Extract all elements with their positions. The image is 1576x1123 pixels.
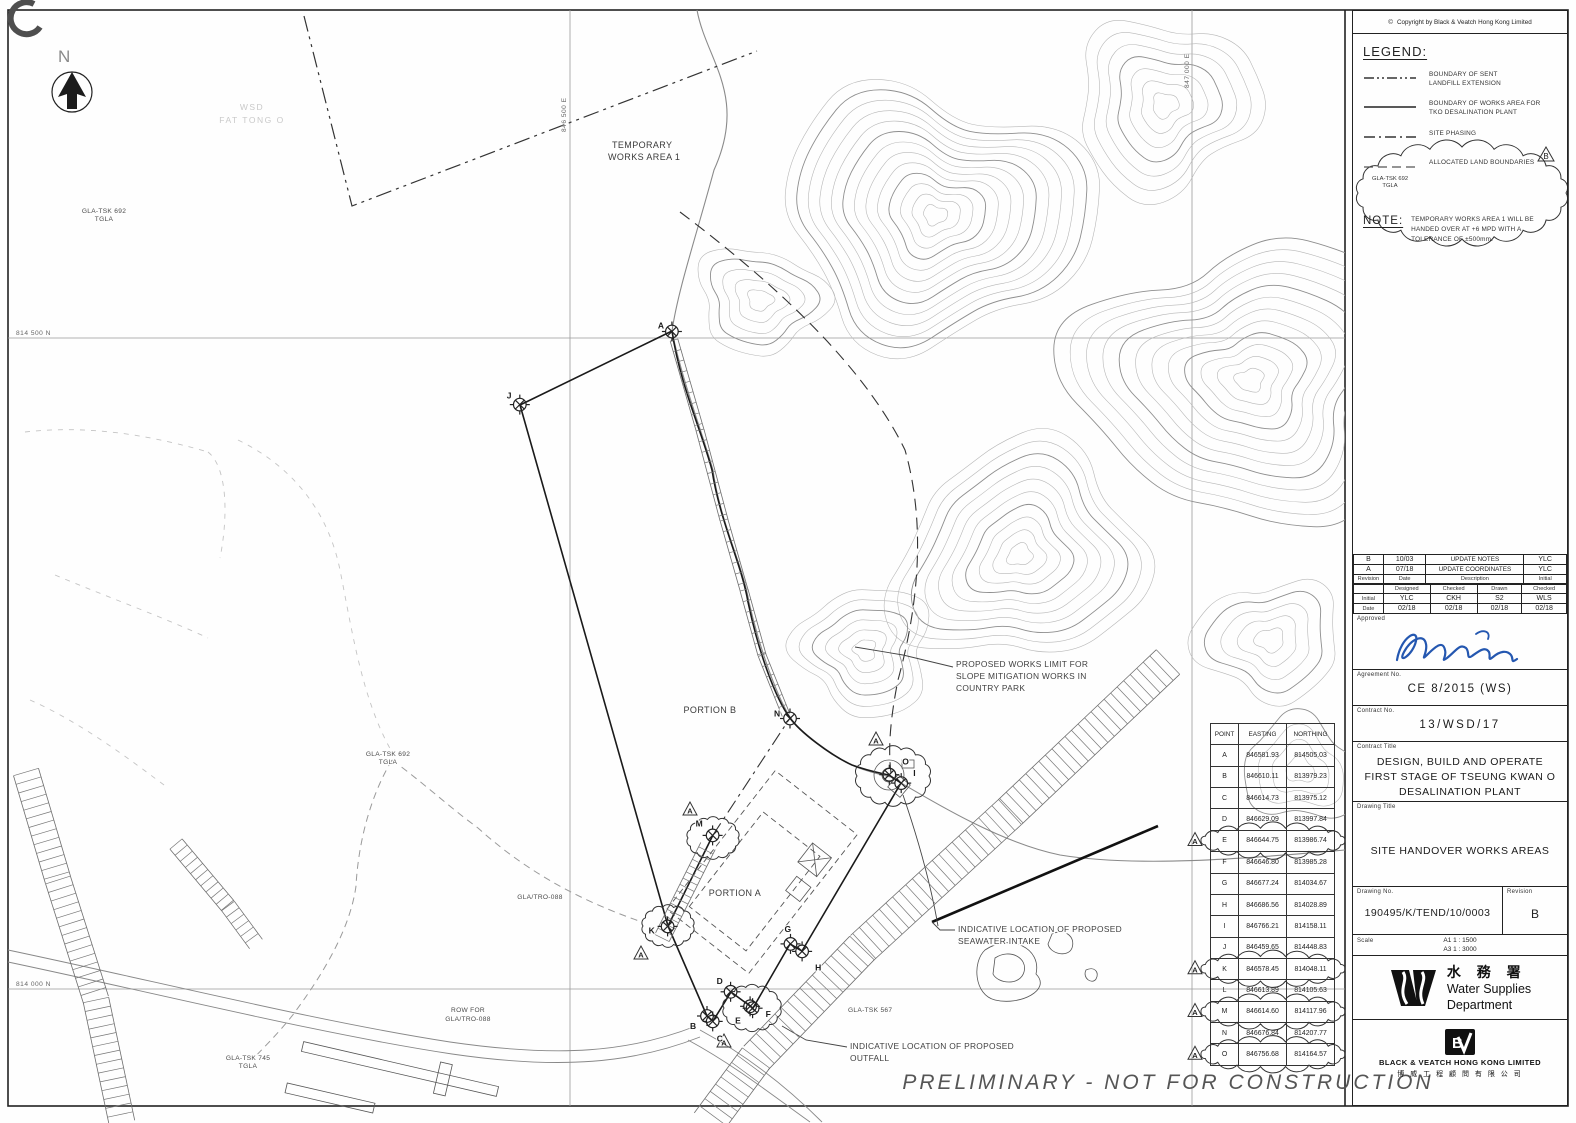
coordinate-row: C846614.73813975.12	[1211, 788, 1335, 809]
scale-values: A1 1 : 1500A3 1 : 3000	[1443, 936, 1476, 954]
hatched-embankment	[694, 650, 1179, 1123]
north-label: N	[58, 47, 70, 66]
svg-text:FAT TONG O: FAT TONG O	[219, 115, 284, 125]
sent-landfill-boundary	[304, 16, 757, 206]
coordinate-row: M846614.60814117.96	[1211, 1001, 1335, 1022]
copyright-icon: ©	[1388, 19, 1393, 26]
seawater-intake-label: INDICATIVE LOCATION OF PROPOSED SEAWATER…	[958, 924, 1122, 946]
svg-text:A: A	[1192, 1008, 1198, 1017]
coordinate-row: K846578.45814048.11	[1211, 958, 1335, 979]
coordinate-row: A846581.93814505.03	[1211, 745, 1335, 766]
solid-line-swatch	[1361, 99, 1419, 117]
coordinate-row: O846756.68814164.57	[1211, 1044, 1335, 1065]
svg-text:SEAWATER INTAKE: SEAWATER INTAKE	[958, 936, 1040, 946]
contract-no-label: Contract No.	[1357, 708, 1394, 714]
scale-label: Scale	[1357, 938, 1374, 944]
revision-triangle: A	[1188, 1004, 1202, 1018]
svg-text:A: A	[638, 951, 644, 960]
point-label: E	[735, 1015, 741, 1025]
point-label: C	[717, 1033, 723, 1043]
svg-text:A: A	[1192, 1051, 1198, 1060]
coordinate-row: J846459.65814448.83	[1211, 937, 1335, 958]
point-label: H	[815, 962, 821, 972]
allocated-boundary-swatch: GLA-TSK 692TGLA	[1361, 158, 1419, 190]
bv-box: B BLACK & VEATCH HONG KONG LIMITED 博 威 工…	[1353, 1020, 1567, 1086]
leader-lines	[782, 647, 1158, 1047]
contract-title: DESIGN, BUILD AND OPERATE FIRST STAGE OF…	[1353, 755, 1567, 801]
drawing-no: 190495/K/TEND/10/0003	[1353, 907, 1502, 919]
hatched-embankment	[14, 768, 135, 1123]
coordinate-row: L846613.89814105.63	[1211, 980, 1335, 1001]
revision-triangle: A	[634, 946, 648, 960]
approval-signature	[1381, 622, 1551, 668]
roads	[8, 950, 822, 1122]
drawing-no-box: Drawing No. 190495/K/TEND/10/0003 Revisi…	[1353, 887, 1567, 935]
bv-logo-icon: B	[1444, 1028, 1476, 1056]
contract-no: 13/WSD/17	[1353, 719, 1567, 731]
point-label: B	[690, 1021, 696, 1031]
revision-row: B10/03 UPDATE NOTESYLC	[1354, 555, 1567, 565]
svg-text:A: A	[1192, 837, 1198, 846]
point-label: A	[658, 321, 664, 331]
bv-name: BLACK & VEATCH HONG KONG LIMITED	[1379, 1058, 1541, 1067]
portion-b-label: PORTION B	[684, 705, 737, 715]
revision-triangle: A	[683, 802, 697, 816]
point-label: I	[913, 768, 915, 778]
drawing-sheet: AAAAABCDEFGHIJKMNOAAAA N WSD FAT TONG O …	[0, 0, 1576, 1123]
staff-date-row: Date02/18 02/1802/18 02/18	[1354, 604, 1567, 614]
svg-text:GLA/TRO-088: GLA/TRO-088	[445, 1016, 490, 1023]
contract-title-box: Contract Title DESIGN, BUILD AND OPERATE…	[1353, 742, 1567, 802]
row-for-label: ROW FOR	[451, 1007, 485, 1014]
scale-box: Scale A1 1 : 1500A3 1 : 3000	[1353, 935, 1567, 956]
revision-header-row: RevisionDate DescriptionInitial	[1354, 575, 1567, 584]
point-label: N	[774, 709, 780, 719]
svg-text:A: A	[687, 807, 693, 816]
coordinate-table: POINTEASTINGNORTHINGA846581.93814505.03B…	[1210, 723, 1335, 1066]
svg-text:846 500 E: 846 500 E	[561, 97, 568, 132]
note-block: NOTE: TEMPORARY WORKS AREA 1 WILL BE HAN…	[1361, 215, 1559, 245]
revision-triangle: A	[1188, 833, 1202, 847]
gla-692-label-mid: GLA-TSK 692	[366, 751, 410, 758]
revision-triangle: A	[869, 732, 883, 746]
svg-text:PROPOSED WORKS LIMIT FOR: PROPOSED WORKS LIMIT FOR	[956, 659, 1088, 669]
coordinate-row: D846629.09813997.84	[1211, 809, 1335, 830]
drawing-no-label: Drawing No.	[1357, 889, 1393, 895]
point-label: K	[649, 925, 656, 935]
legend-item-sent-boundary: BOUNDARY OF SENTLANDFILL EXTENSION	[1361, 70, 1559, 88]
drawing-title: SITE HANDOVER WORKS AREAS	[1353, 844, 1567, 859]
slope-works-label: PROPOSED WORKS LIMIT FOR SLOPE MITIGATIO…	[956, 659, 1088, 693]
legend-revision-triangle: B	[1537, 146, 1555, 167]
pier-outlines	[285, 1031, 501, 1113]
allocated-land-boundaries	[25, 430, 642, 1058]
svg-text:INDICATIVE LOCATION OF PROPOSE: INDICATIVE LOCATION OF PROPOSED	[850, 1041, 1014, 1051]
point-label: D	[717, 976, 723, 986]
grid-labels: 846 500 E 847 000 E 814 500 N 814 000 N	[16, 53, 1191, 988]
site-phasing-line	[713, 718, 790, 835]
gla-tsk-567-label: GLA-TSK 567	[848, 1007, 892, 1014]
gla-692-label-top: GLA-TSK 692	[82, 208, 126, 215]
revision-triangle: A	[1188, 961, 1202, 975]
copyright-text: Copyright by Black & Veatch Hong Kong Li…	[1397, 19, 1532, 26]
scan-artifact	[11, 2, 40, 34]
coordinate-header-row: POINTEASTINGNORTHING	[1211, 724, 1335, 745]
coordinate-row: N846676.84814207.77	[1211, 1023, 1335, 1044]
point-label: M	[696, 818, 703, 828]
title-block: © Copyright by Black & Veatch Hong Kong …	[1352, 10, 1568, 1106]
point-label: F	[766, 1009, 771, 1019]
svg-text:A: A	[1192, 965, 1198, 974]
faint-area-label: WSD	[240, 102, 264, 112]
works-area-boundary	[520, 331, 901, 1021]
outfall-label: INDICATIVE LOCATION OF PROPOSED OUTFALL	[850, 1041, 1014, 1063]
wsd-chinese: 水 務 署	[1447, 962, 1531, 982]
temporary-works-area-label: TEMPORARY	[612, 140, 672, 150]
contract-title-label: Contract Title	[1357, 744, 1397, 750]
svg-text:814 000 N: 814 000 N	[16, 981, 51, 988]
gla-tsk-745-label: GLA-TSK 745	[226, 1055, 270, 1062]
svg-text:B: B	[1543, 152, 1548, 161]
coordinate-row: E846644.75813986.74	[1211, 830, 1335, 851]
svg-text:INDICATIVE LOCATION OF PROPOSE: INDICATIVE LOCATION OF PROPOSED	[958, 924, 1122, 934]
note-title: NOTE:	[1363, 215, 1403, 245]
staff-header-row: Designed CheckedDrawn Checked	[1354, 585, 1567, 594]
agreement-box: Agreement No. CE 8/2015 (WS)	[1353, 670, 1567, 706]
site-plan-map: AAAAABCDEFGHIJKMNOAAAA N WSD FAT TONG O …	[0, 0, 1576, 1123]
legend-item-allocated-land: GLA-TSK 692TGLA ALLOCATED LAND BOUNDARIE…	[1361, 158, 1559, 190]
svg-text:WORKS AREA 1: WORKS AREA 1	[608, 152, 680, 162]
note-text: TEMPORARY WORKS AREA 1 WILL BE HANDED OV…	[1411, 215, 1545, 245]
svg-text:814 500 N: 814 500 N	[16, 330, 51, 337]
svg-text:SLOPE MITIGATION WORKS IN: SLOPE MITIGATION WORKS IN	[956, 671, 1087, 681]
bv-chinese: 博 威 工 程 顧 問 有 限 公 司	[1397, 1069, 1523, 1079]
wsd-box: 水 務 署 Water SuppliesDepartment	[1353, 956, 1567, 1020]
coordinate-row: F846646.80813985.28	[1211, 852, 1335, 873]
legend-item-works-boundary: BOUNDARY OF WORKS AREA FORTKO DESALINATI…	[1361, 99, 1559, 117]
legend-item-site-phasing: SITE PHASING	[1361, 129, 1559, 147]
point-label: J	[507, 391, 512, 401]
agreement-label: Agreement No.	[1357, 672, 1401, 678]
point-label: G	[785, 924, 792, 934]
dash-dot-dot-line-swatch	[1361, 70, 1419, 88]
point-label: O	[902, 757, 909, 767]
hatched-embankment	[170, 839, 263, 949]
svg-text:COUNTRY PARK: COUNTRY PARK	[956, 683, 1025, 693]
svg-text:A: A	[873, 737, 879, 746]
coordinate-row: G846677.24814034.67	[1211, 873, 1335, 894]
svg-text:847 000 E: 847 000 E	[1184, 53, 1191, 88]
portion-a-label: PORTION A	[709, 888, 761, 898]
revision-value: B	[1503, 907, 1567, 921]
svg-text:TGLA: TGLA	[379, 759, 398, 766]
svg-text:OUTFALL: OUTFALL	[850, 1053, 889, 1063]
copyright-strip: © Copyright by Black & Veatch Hong Kong …	[1353, 11, 1567, 34]
wsd-logo-icon	[1389, 967, 1439, 1009]
revision-history: B10/03 UPDATE NOTESYLC A07/18 UPDATE COO…	[1353, 554, 1567, 614]
revision-label: Revision	[1507, 889, 1532, 895]
legend-title: LEGEND:	[1363, 44, 1559, 59]
drawing-title-label: Drawing Title	[1357, 804, 1396, 810]
survey-marker-G: G	[781, 924, 801, 954]
legend-section: LEGEND: BOUNDARY OF SENTLANDFILL EXTENSI…	[1353, 34, 1567, 554]
survey-marker-J: J	[507, 391, 530, 415]
north-arrow	[52, 72, 92, 112]
coordinate-row: H846686.56814028.89	[1211, 894, 1335, 915]
coordinate-row: I846766.21814158.11	[1211, 916, 1335, 937]
staff-initial-row: InitialYLC CKHS2 WLS	[1354, 594, 1567, 604]
revision-row: A07/18 UPDATE COORDINATESYLC	[1354, 565, 1567, 575]
svg-text:TGLA: TGLA	[95, 216, 114, 223]
svg-text:TGLA: TGLA	[239, 1063, 258, 1070]
drawing-title-box: Drawing Title SITE HANDOVER WORKS AREAS	[1353, 802, 1567, 887]
contract-no-box: Contract No. 13/WSD/17	[1353, 706, 1567, 742]
approved-label: Approved	[1357, 616, 1385, 622]
gla-tro-088-label: GLA/TRO-088	[517, 894, 562, 901]
agreement-no: CE 8/2015 (WS)	[1353, 683, 1567, 695]
contour-lines	[698, 20, 1421, 818]
revision-triangle: A	[1188, 1046, 1202, 1060]
dash-dot-line-swatch	[1361, 129, 1419, 147]
approved-box: Approved	[1353, 614, 1567, 670]
coordinate-row: B846610.11813979.23	[1211, 766, 1335, 787]
